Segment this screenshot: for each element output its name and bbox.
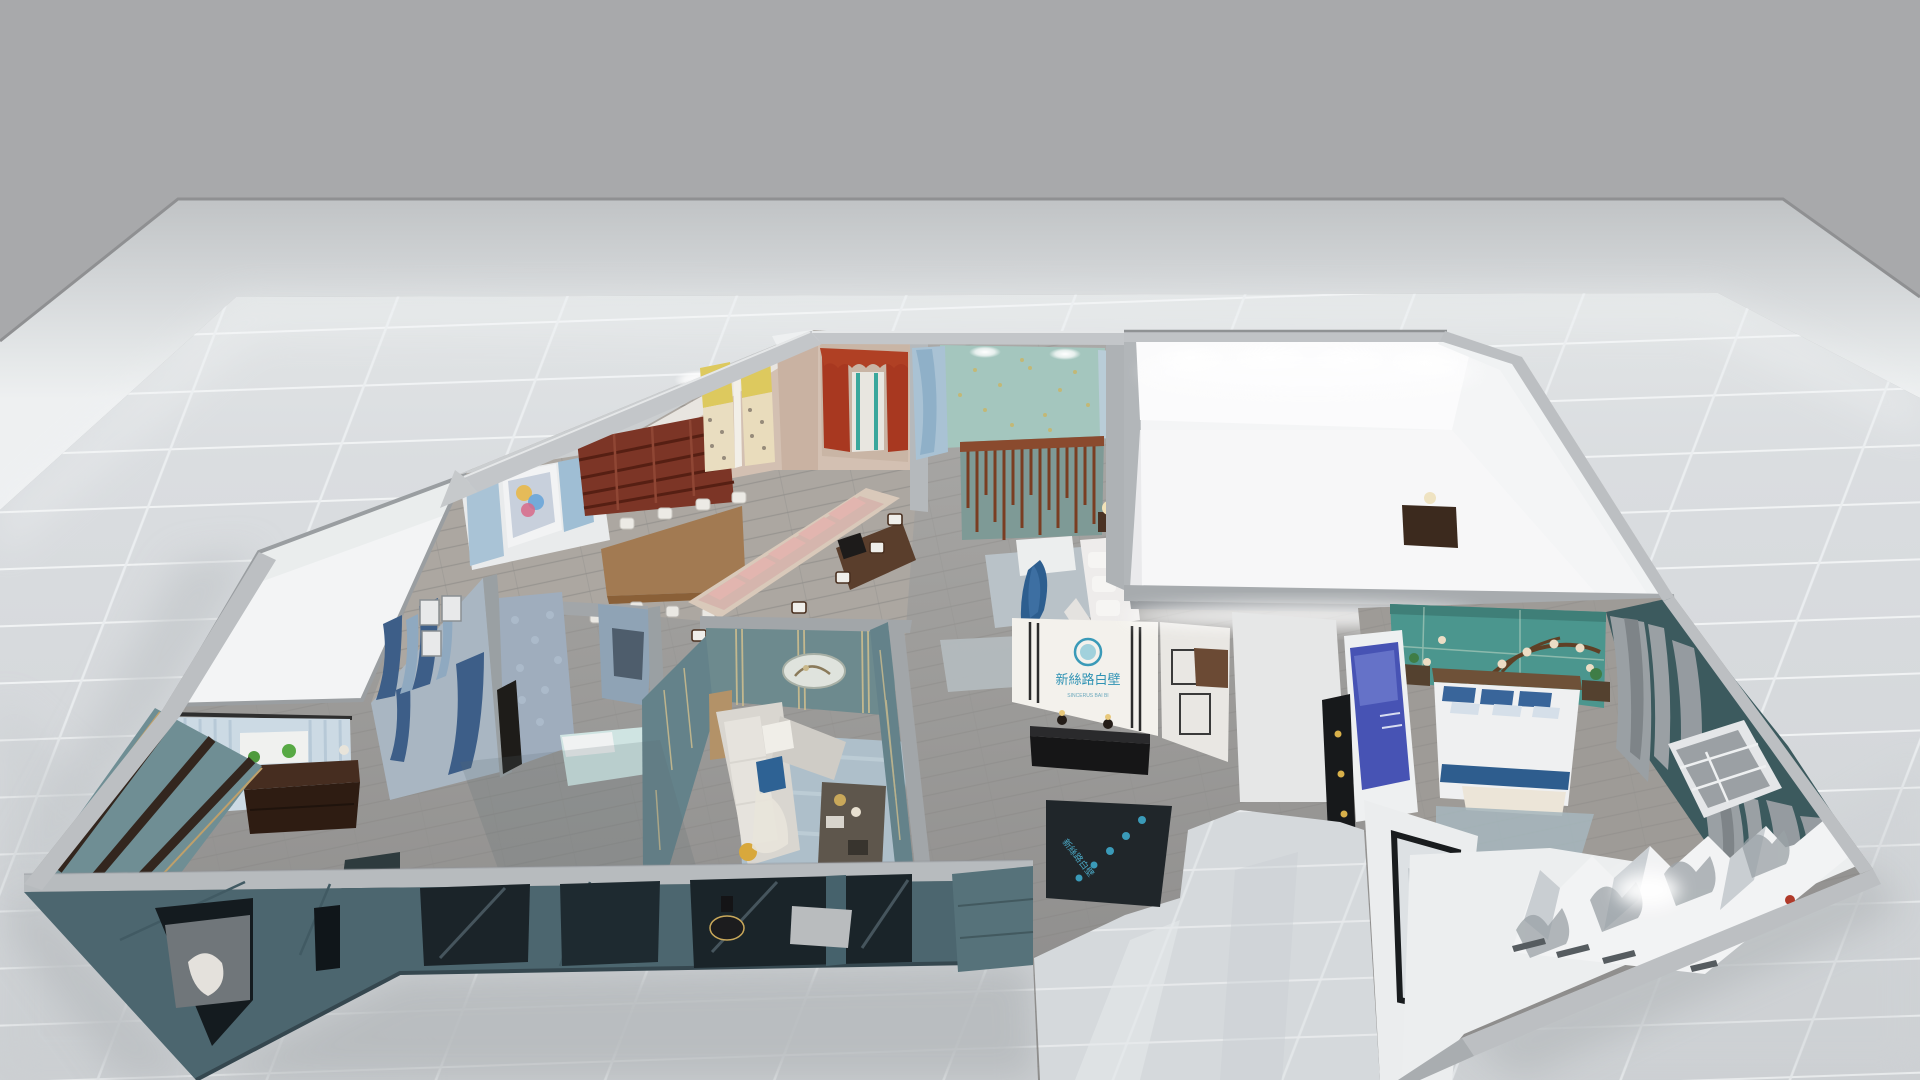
svg-text:SINCERUS BAI BI: SINCERUS BAI BI: [1067, 693, 1108, 699]
svg-text:新絲路白壁: 新絲路白壁: [1055, 672, 1120, 687]
